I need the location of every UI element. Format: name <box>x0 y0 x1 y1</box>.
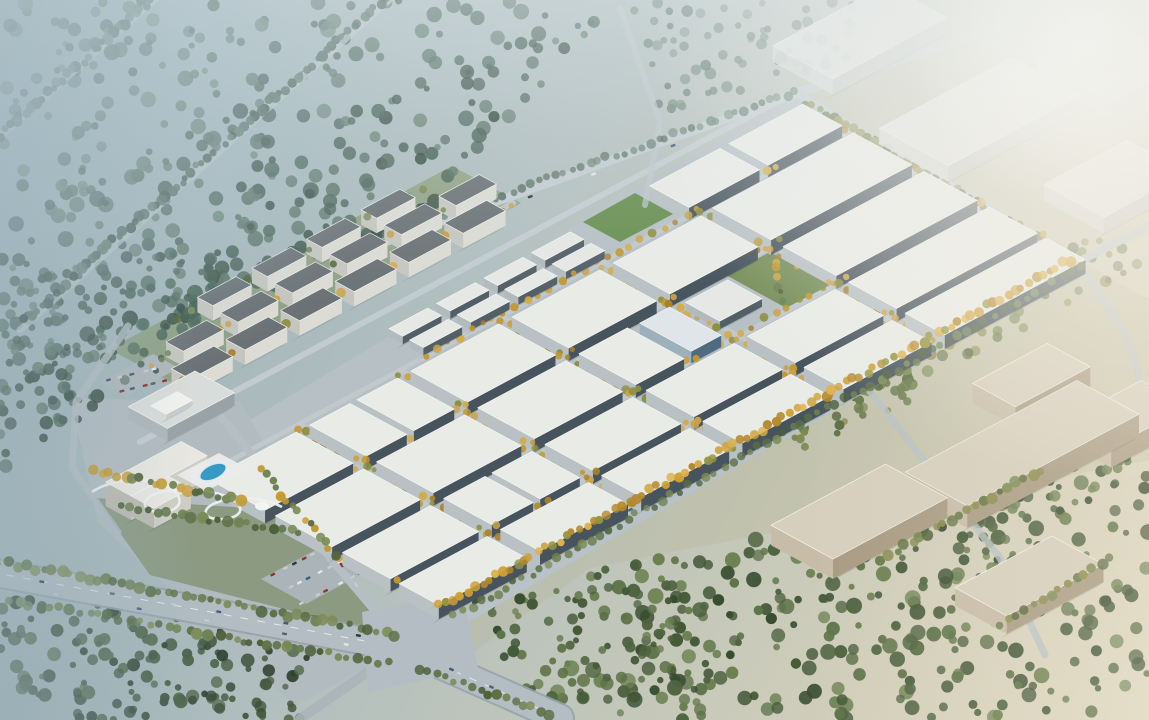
garden-dome <box>255 502 269 511</box>
aerial-site-rendering: Aerial architectural rendering of an ind… <box>0 0 1149 720</box>
scene-canvas <box>0 0 1149 720</box>
